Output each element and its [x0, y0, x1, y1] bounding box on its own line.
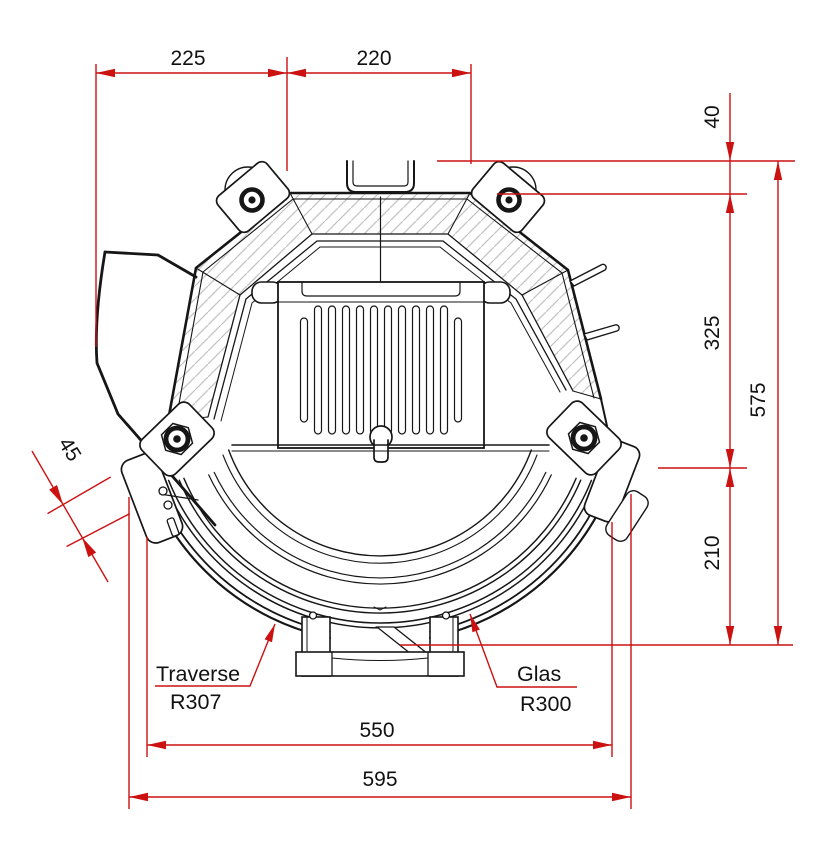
arrow-225-right — [268, 69, 287, 77]
bolt-center — [248, 196, 255, 203]
foot-diagonal-strut — [377, 627, 428, 654]
dim-220-value: 220 — [356, 47, 391, 70]
curved-door-arcs — [147, 472, 613, 638]
right-tab-lower — [584, 325, 619, 340]
dim-595-value: 595 — [362, 768, 397, 791]
label-traverse-radius: R307 — [170, 690, 221, 714]
arrow-210-bottom — [726, 626, 734, 645]
foot-bolt-left — [310, 612, 317, 619]
ext-line-45-lower — [67, 514, 130, 547]
arrow-40-bottom-325-top — [726, 194, 734, 213]
dim-225-value: 225 — [170, 47, 205, 70]
bolt-center — [580, 434, 588, 442]
dim-550-value: 550 — [359, 719, 394, 742]
arrow-575-bottom — [774, 626, 782, 645]
hinge-screw-2 — [164, 501, 172, 509]
label-traverse: Traverse — [156, 662, 240, 686]
grate-body — [278, 282, 484, 448]
base-foot — [296, 612, 464, 676]
dim-line-45 — [32, 451, 108, 582]
bolt-center — [505, 196, 512, 203]
arrow-220-left — [287, 69, 306, 77]
dim-575-value: 575 — [747, 382, 770, 417]
dim-45-value: 45 — [54, 434, 86, 466]
arrow-575-top — [774, 161, 782, 180]
hinge-screw-1 — [159, 487, 167, 495]
firebox-floor — [223, 445, 549, 610]
arrow-40-top — [726, 142, 734, 161]
top-flue-bracket — [347, 161, 414, 192]
stove-cross-section-drawing: 225 220 40 325 575 210 45 550 595 Traver… — [0, 0, 827, 849]
outer-rim-arc-2 — [147, 480, 613, 638]
door-liner-arc-1 — [214, 472, 546, 578]
right-tab-upper — [570, 264, 606, 286]
label-glas: Glas — [517, 662, 561, 686]
traverse-arc-2 — [164, 482, 596, 628]
floor-bowl-arc-1 — [229, 450, 532, 556]
arrow-leader-traverse — [265, 624, 275, 642]
bracket-outer — [347, 161, 414, 192]
arrow-220-right — [452, 69, 471, 77]
arrow-550-right — [593, 741, 612, 749]
arrow-225-left — [96, 69, 115, 77]
arrow-595-left — [129, 793, 148, 801]
arrow-45-lower — [82, 538, 96, 558]
label-glas-radius: R300 — [520, 692, 571, 716]
glass-arc-1 — [184, 478, 576, 608]
arrow-45-upper — [49, 485, 63, 505]
arrow-325-bottom — [726, 449, 734, 468]
floor-bowl-arc-2 — [223, 455, 537, 563]
foot-bottom-rail — [296, 652, 464, 676]
arrow-210-top — [726, 468, 734, 487]
dim-40-value: 40 — [701, 105, 724, 128]
technical-drawing-page: 225 220 40 325 575 210 45 550 595 Traver… — [0, 0, 827, 849]
shield-top-edge — [105, 252, 196, 277]
bolt-center — [173, 435, 181, 443]
dim-325-value: 325 — [701, 315, 724, 350]
dim-210-value: 210 — [701, 535, 724, 570]
arrow-550-left — [147, 741, 166, 749]
stove-body — [96, 159, 651, 676]
arrow-595-right — [612, 793, 631, 801]
rear-grate-panel — [252, 282, 510, 462]
door-liner-arc-2 — [209, 475, 552, 584]
foot-bolt-right — [443, 612, 450, 619]
